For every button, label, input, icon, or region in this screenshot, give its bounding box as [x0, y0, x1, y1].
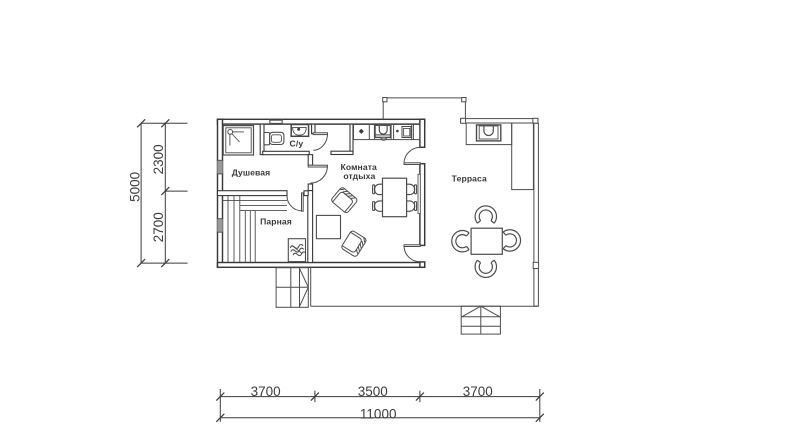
svg-text:5000: 5000 [127, 172, 142, 202]
svg-text:С/у: С/у [290, 139, 304, 149]
svg-text:3700: 3700 [251, 384, 281, 399]
svg-text:2700: 2700 [151, 212, 166, 242]
svg-text:2300: 2300 [151, 144, 166, 174]
svg-text:Терраса: Терраса [452, 173, 487, 183]
svg-text:отдыха: отдыха [343, 171, 375, 181]
svg-text:Парная: Парная [260, 216, 292, 226]
svg-text:3500: 3500 [358, 384, 388, 399]
svg-text:3700: 3700 [463, 384, 493, 399]
svg-text:11000: 11000 [360, 406, 397, 421]
svg-text:Душевая: Душевая [232, 167, 271, 177]
